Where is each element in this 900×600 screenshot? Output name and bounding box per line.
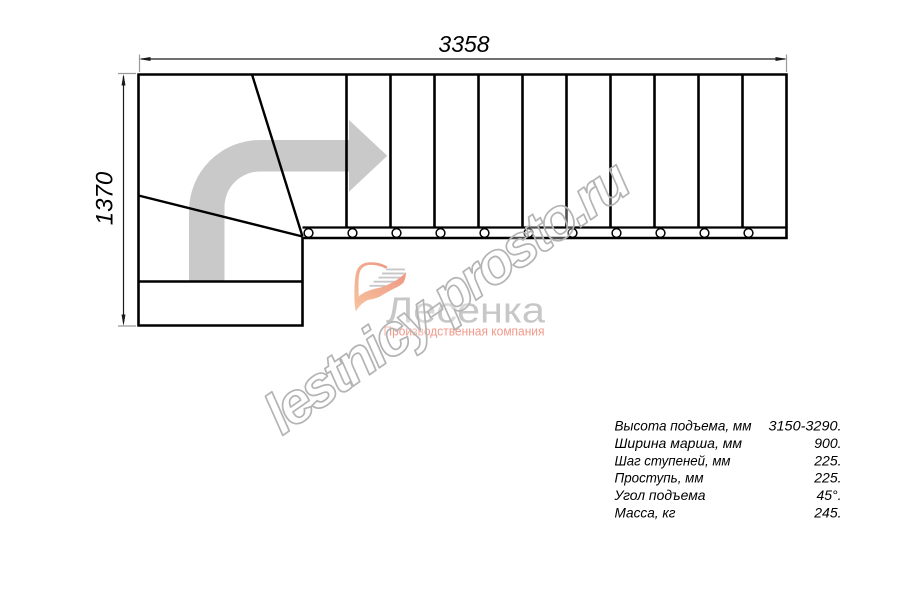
svg-text:45°.: 45°.: [816, 487, 841, 503]
svg-text:3150-3290.: 3150-3290.: [769, 418, 842, 434]
svg-text:900.: 900.: [814, 435, 841, 451]
svg-text:225.: 225.: [813, 452, 841, 468]
svg-text:Проступь, мм: Проступь, мм: [615, 470, 704, 486]
svg-text:Ширина марша, мм: Ширина марша, мм: [615, 435, 743, 451]
svg-text:225.: 225.: [813, 470, 841, 486]
svg-text:3358: 3358: [438, 31, 489, 57]
svg-text:1370: 1370: [92, 171, 119, 225]
svg-text:Высота подъема, мм: Высота подъема, мм: [615, 418, 752, 434]
svg-text:Угол подъема: Угол подъема: [614, 487, 706, 503]
svg-text:Шаг ступеней, мм: Шаг ступеней, мм: [615, 452, 731, 468]
svg-text:245.: 245.: [813, 505, 841, 521]
svg-text:Масса, кг: Масса, кг: [615, 505, 676, 521]
